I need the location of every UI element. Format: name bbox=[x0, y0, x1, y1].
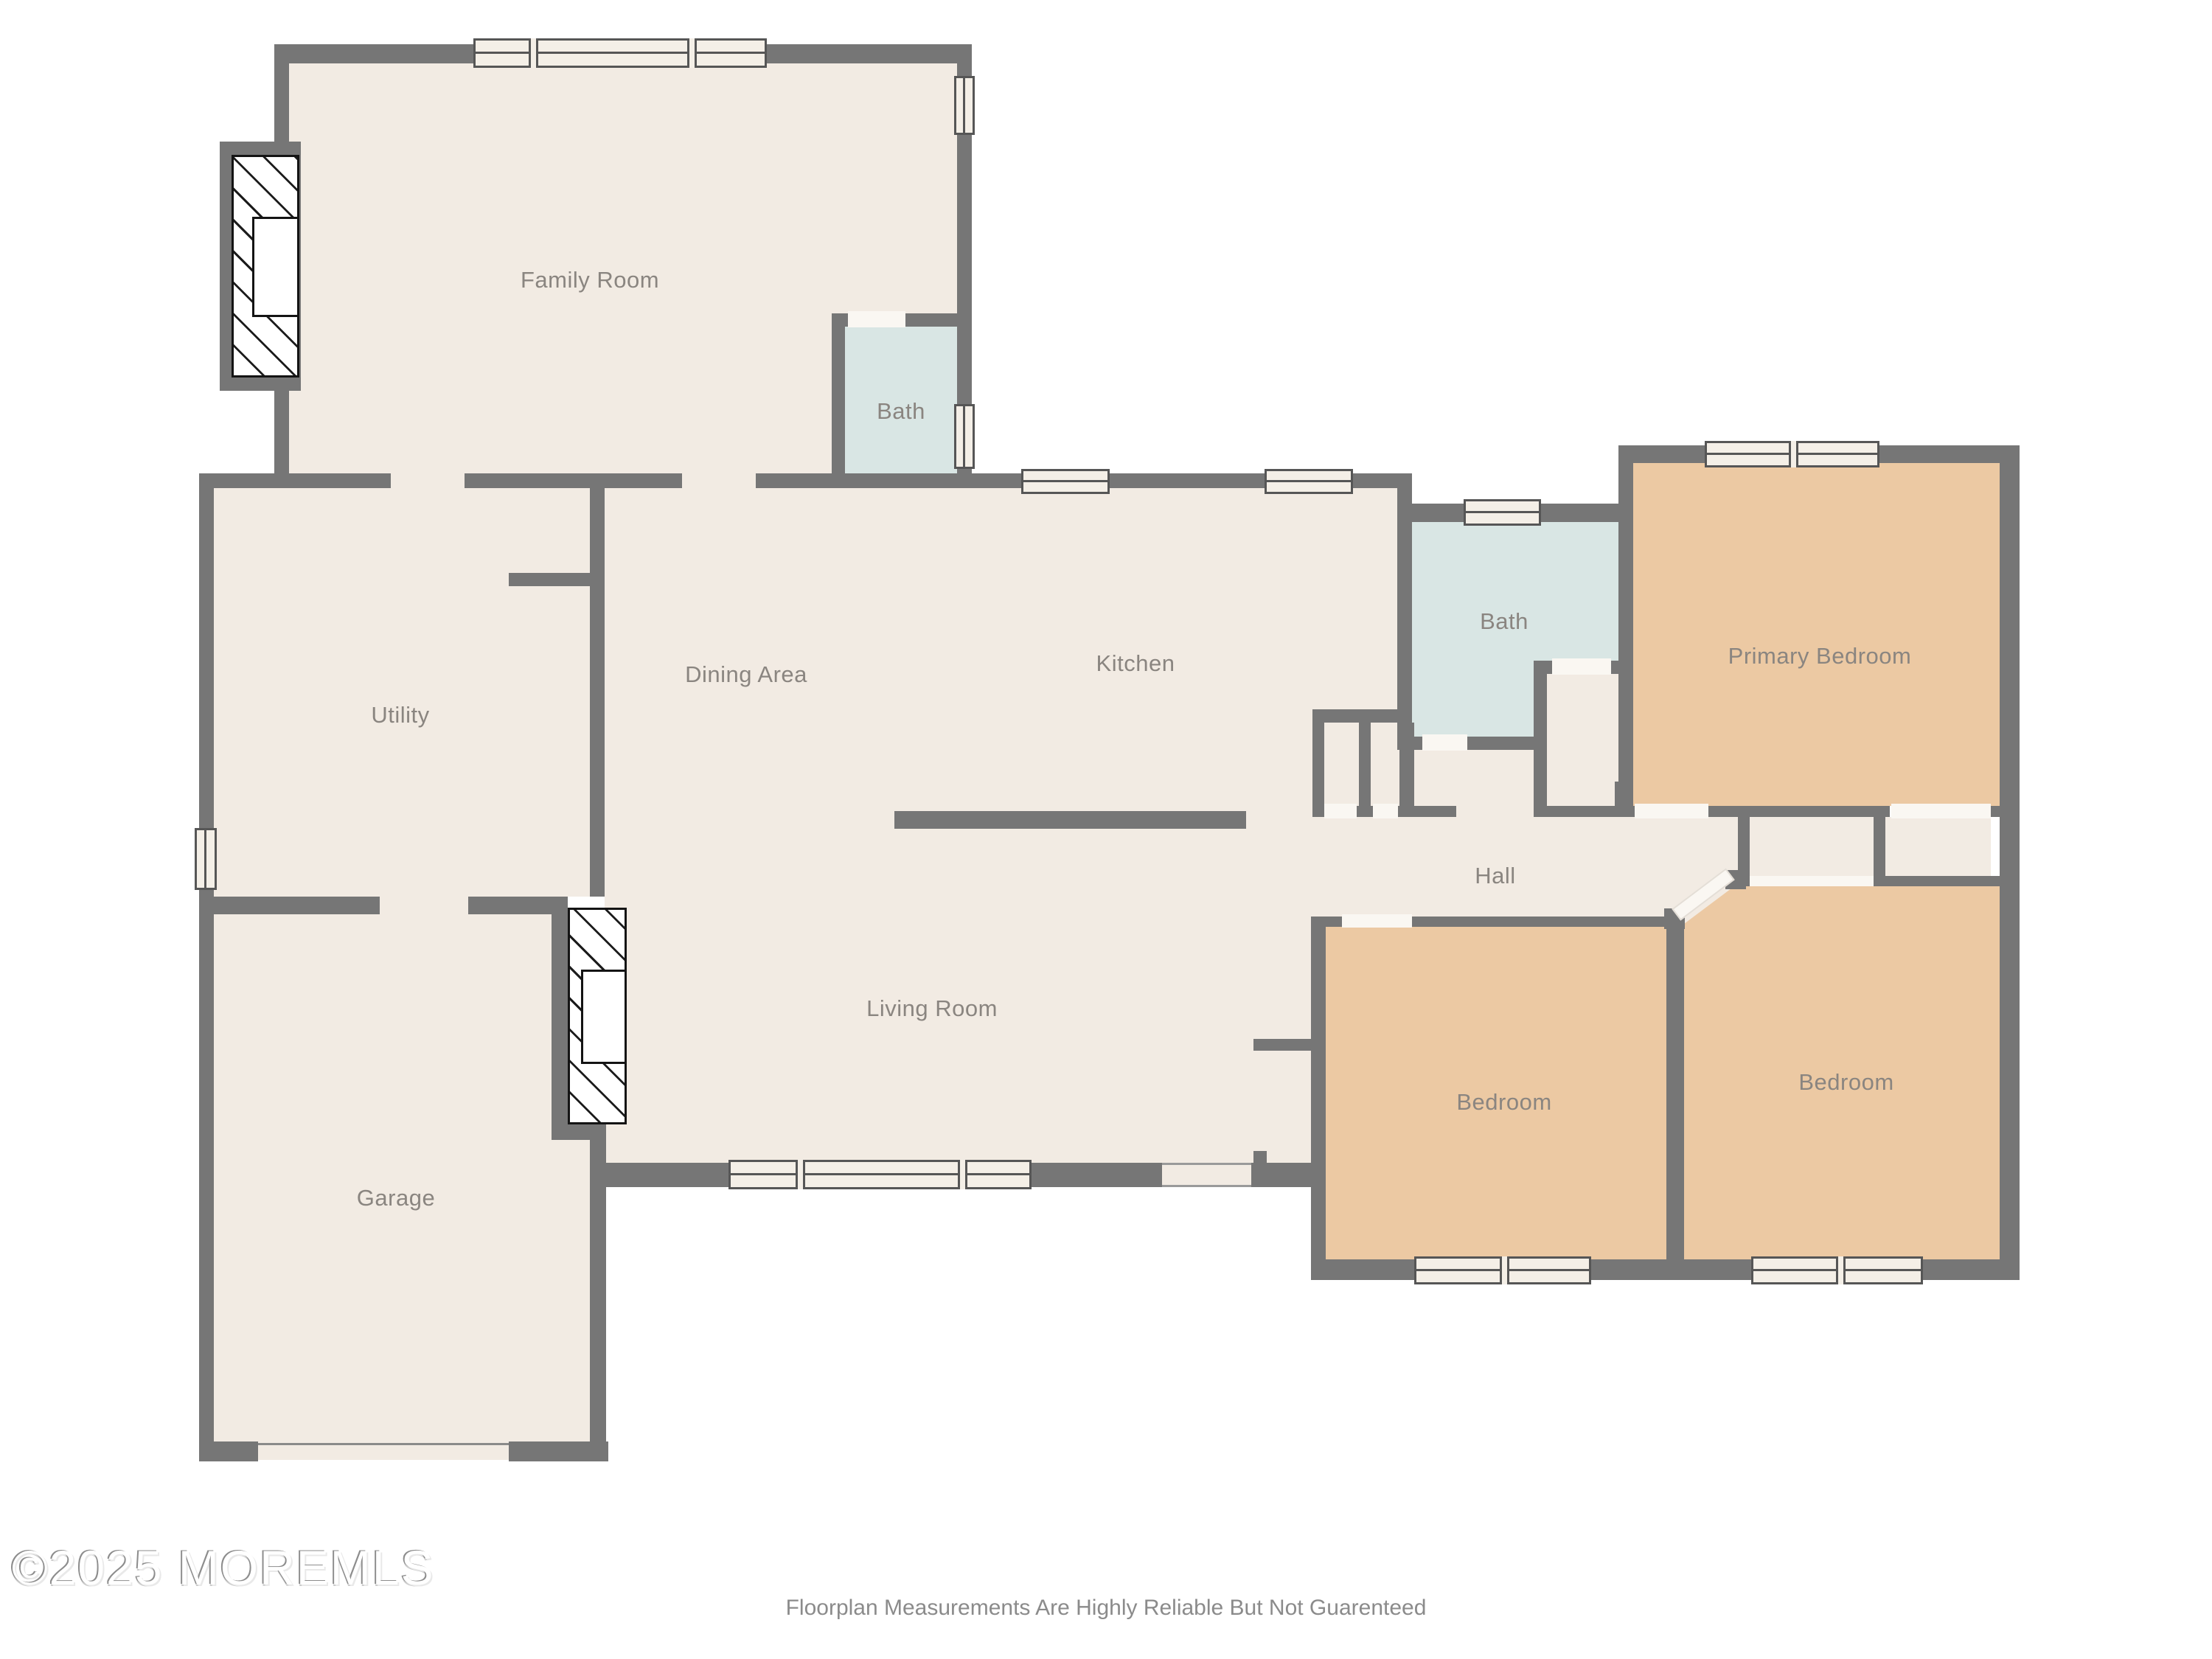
window bbox=[1021, 469, 1110, 494]
bedroom-right-closet-floor bbox=[1750, 817, 1874, 876]
wall bbox=[1666, 924, 1684, 1280]
garage-door bbox=[258, 1443, 509, 1460]
vestibule-closet-floor bbox=[1547, 674, 1618, 806]
disclaimer-text: Floorplan Measurements Are Highly Reliab… bbox=[786, 1596, 1427, 1621]
wall bbox=[832, 313, 848, 327]
wall bbox=[1311, 917, 1342, 927]
door-opening bbox=[1891, 804, 1991, 818]
door-opening bbox=[1422, 734, 1467, 751]
window bbox=[1705, 441, 1879, 467]
door-opening bbox=[1373, 804, 1398, 818]
window bbox=[195, 828, 217, 890]
utility-floor bbox=[214, 488, 590, 897]
closet-slider-door bbox=[1750, 876, 1874, 886]
wall bbox=[1253, 1039, 1326, 1051]
kitchen-half-wall bbox=[894, 811, 1246, 829]
wall bbox=[1397, 737, 1422, 750]
firebox bbox=[252, 217, 299, 317]
wall bbox=[199, 473, 391, 488]
door-opening bbox=[848, 311, 905, 327]
wall bbox=[1874, 876, 2003, 886]
wall bbox=[465, 473, 682, 488]
room-label-hall: Hall bbox=[1475, 863, 1515, 889]
door-opening bbox=[1324, 804, 1357, 818]
room-label-dining-area: Dining Area bbox=[685, 661, 807, 688]
wall bbox=[199, 473, 214, 1443]
wall bbox=[590, 1163, 730, 1187]
garage-floor bbox=[214, 914, 594, 1443]
window bbox=[1265, 469, 1353, 494]
dining-kitchen-floor bbox=[605, 488, 1412, 818]
door-opening bbox=[1635, 804, 1708, 818]
wall bbox=[552, 897, 568, 1140]
patio-door bbox=[1162, 1163, 1251, 1187]
window bbox=[954, 404, 975, 469]
floorplan-canvas: Family Room Bath Utility Dining Area Kit… bbox=[0, 0, 2212, 1659]
wall bbox=[905, 313, 972, 327]
door-opening bbox=[682, 473, 756, 488]
room-label-primary-bedroom: Primary Bedroom bbox=[1728, 643, 1912, 669]
room-label-bath-hall: Bath bbox=[1480, 608, 1528, 635]
wall bbox=[1359, 723, 1371, 806]
wall bbox=[1253, 1151, 1267, 1163]
living-room-floor bbox=[605, 818, 1311, 1163]
primary-bedroom-floor bbox=[1633, 463, 2000, 806]
door-opening bbox=[391, 473, 465, 488]
wall bbox=[1708, 806, 1890, 817]
wall bbox=[1397, 488, 1412, 750]
room-label-bedroom-right: Bedroom bbox=[1798, 1069, 1893, 1096]
room-label-family-room: Family Room bbox=[521, 267, 659, 293]
window bbox=[954, 76, 975, 135]
window bbox=[1751, 1256, 1923, 1284]
wall bbox=[1311, 917, 1326, 1280]
room-label-bedroom-center: Bedroom bbox=[1456, 1089, 1551, 1116]
wall bbox=[1312, 806, 1324, 817]
wall bbox=[1311, 1259, 1416, 1280]
wall bbox=[1030, 1163, 1162, 1187]
wall bbox=[509, 1441, 608, 1461]
watermark-copyright: ©2025 MOREMLS bbox=[12, 1540, 435, 1596]
wall bbox=[1398, 806, 1456, 817]
wall bbox=[1590, 1259, 1753, 1280]
room-label-garage: Garage bbox=[357, 1185, 435, 1211]
door-opening bbox=[1552, 658, 1611, 675]
room-label-bath-upper: Bath bbox=[877, 398, 925, 425]
wall bbox=[1921, 1259, 2020, 1280]
wall bbox=[1618, 445, 1633, 817]
hall-floor bbox=[1311, 817, 1633, 917]
wall bbox=[2000, 445, 2020, 1280]
wall bbox=[199, 897, 380, 914]
room-label-utility: Utility bbox=[371, 702, 429, 728]
wall bbox=[509, 573, 590, 586]
wall bbox=[1312, 723, 1324, 806]
window bbox=[1414, 1256, 1591, 1284]
window bbox=[1464, 499, 1541, 526]
firebox bbox=[581, 970, 627, 1064]
wall bbox=[199, 1441, 258, 1461]
wall bbox=[1357, 806, 1373, 817]
wall bbox=[1412, 917, 1664, 927]
primary-closet-floor bbox=[1885, 817, 1991, 876]
room-label-kitchen: Kitchen bbox=[1096, 650, 1175, 677]
room-label-living-room: Living Room bbox=[866, 995, 998, 1022]
window bbox=[728, 1160, 1032, 1189]
wall bbox=[1251, 1163, 1311, 1187]
wall bbox=[832, 313, 845, 488]
wall bbox=[1534, 674, 1547, 806]
door-opening bbox=[1342, 914, 1412, 928]
door-opening bbox=[380, 897, 468, 914]
wall bbox=[590, 488, 605, 897]
window bbox=[473, 38, 767, 68]
